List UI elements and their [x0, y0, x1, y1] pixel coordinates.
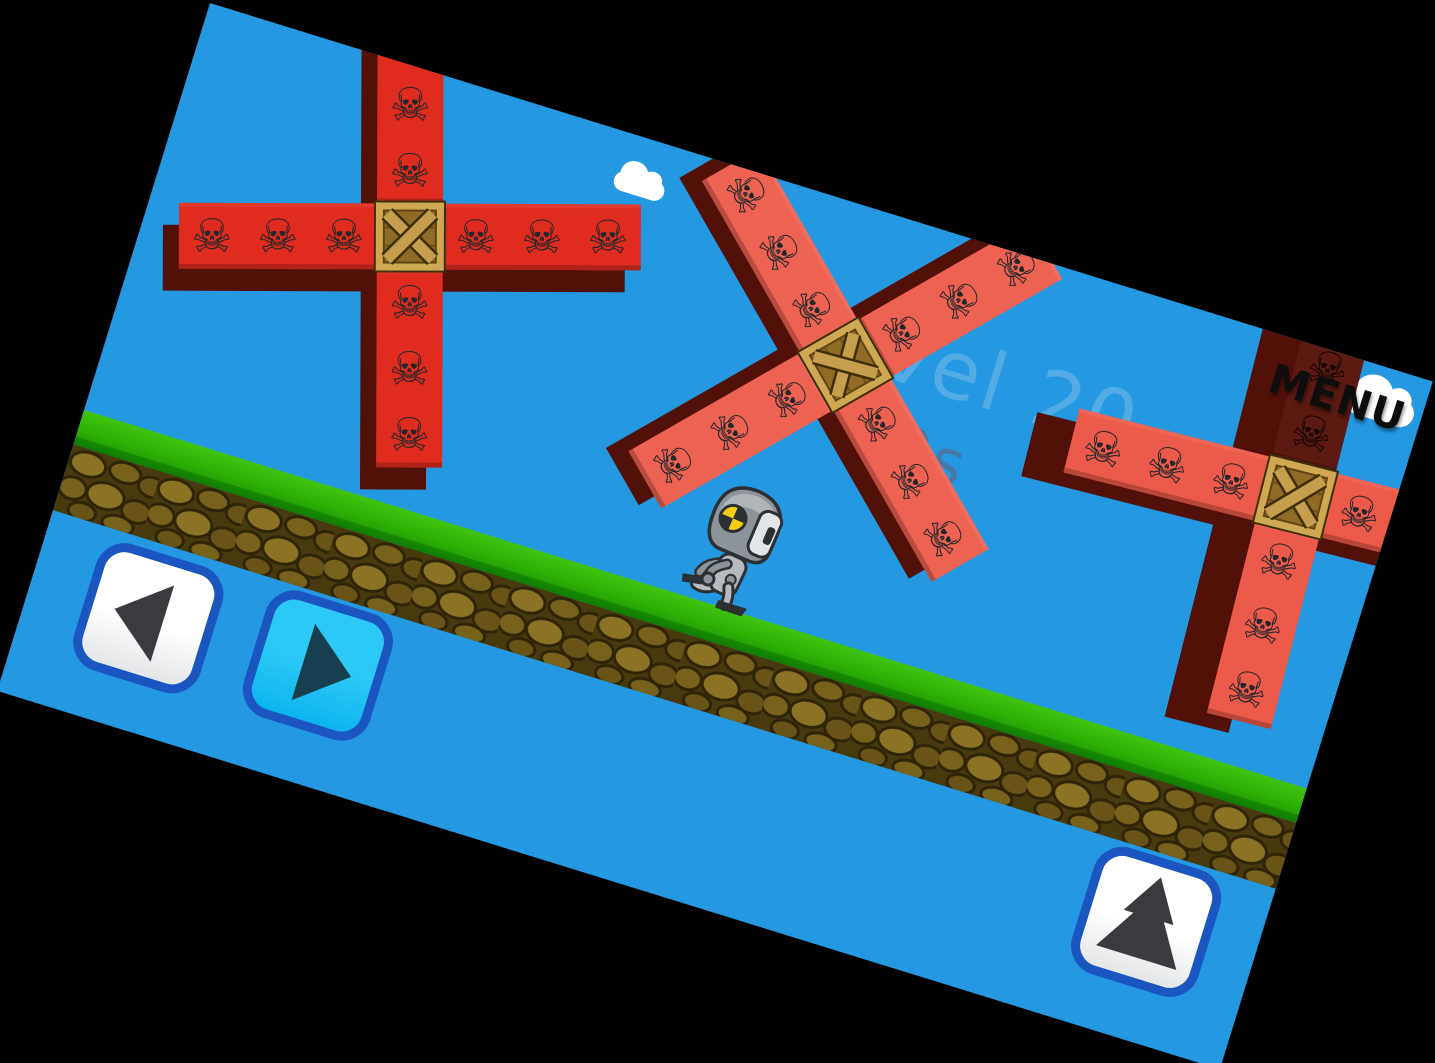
skull-crossbones-icon: ☠ [1318, 278, 1369, 333]
skull-crossbones-icon: ☠ [389, 147, 430, 193]
skull-crossbones-icon: ☠ [1237, 598, 1288, 653]
skull-crossbones-icon: ☠ [914, 508, 974, 567]
screenshot-canvas: Level 20 22s [0, 0, 1435, 1063]
skull-crossbones-icon: ☠ [1254, 534, 1305, 589]
obstacle-cross-right: ☠☠☠ ☠☠☠ ☠☠☠ ☠☠☠ [1015, 216, 1433, 777]
skull-crossbones-icon: ☠ [257, 213, 298, 259]
obstacle-cross-left: ☠☠☠ ☠☠☠ ☠☠☠ ☠☠☠ [178, 5, 642, 469]
skull-crossbones-icon: ☠ [191, 213, 232, 259]
skull-crossbones-icon: ☠ [390, 81, 431, 127]
game-screen: Level 20 22s [0, 3, 1433, 1063]
skull-crossbones-icon: ☠ [1334, 486, 1385, 541]
skull-crossbones-icon: ☠ [848, 393, 908, 452]
skull-crossbones-icon: ☠ [455, 214, 496, 260]
skull-crossbones-icon: ☠ [1206, 454, 1257, 509]
crate-icon [374, 200, 446, 272]
skull-crossbones-icon: ☠ [872, 303, 932, 362]
skull-crossbones-icon: ☠ [750, 221, 810, 280]
triangle-right-icon [247, 594, 390, 737]
skull-crossbones-icon: ☠ [717, 164, 777, 223]
skull-crossbones-icon: ☠ [1221, 662, 1272, 717]
skull-crossbones-icon: ☠ [758, 369, 818, 428]
skull-crossbones-icon: ☠ [701, 401, 761, 460]
skull-crossbones-icon: ☠ [643, 434, 703, 493]
skull-crossbones-icon: ☠ [1398, 502, 1433, 557]
skull-crossbones-icon: ☠ [881, 450, 941, 509]
skull-crossbones-icon: ☠ [1142, 437, 1193, 492]
skull-crossbones-icon: ☠ [389, 279, 430, 325]
skull-crossbones-icon: ☠ [388, 411, 429, 457]
skull-crossbones-icon: ☠ [389, 345, 430, 391]
skull-crossbones-icon: ☠ [930, 270, 990, 329]
skull-crossbones-icon: ☠ [987, 237, 1047, 296]
skull-crossbones-icon: ☠ [323, 213, 364, 259]
jump-arrow-icon [1075, 851, 1218, 994]
skull-crossbones-icon: ☠ [1078, 421, 1129, 476]
skull-crossbones-icon: ☠ [390, 15, 431, 61]
move-left-button[interactable] [66, 536, 231, 701]
triangle-left-icon [77, 547, 220, 690]
skull-crossbones-icon: ☠ [782, 278, 842, 337]
